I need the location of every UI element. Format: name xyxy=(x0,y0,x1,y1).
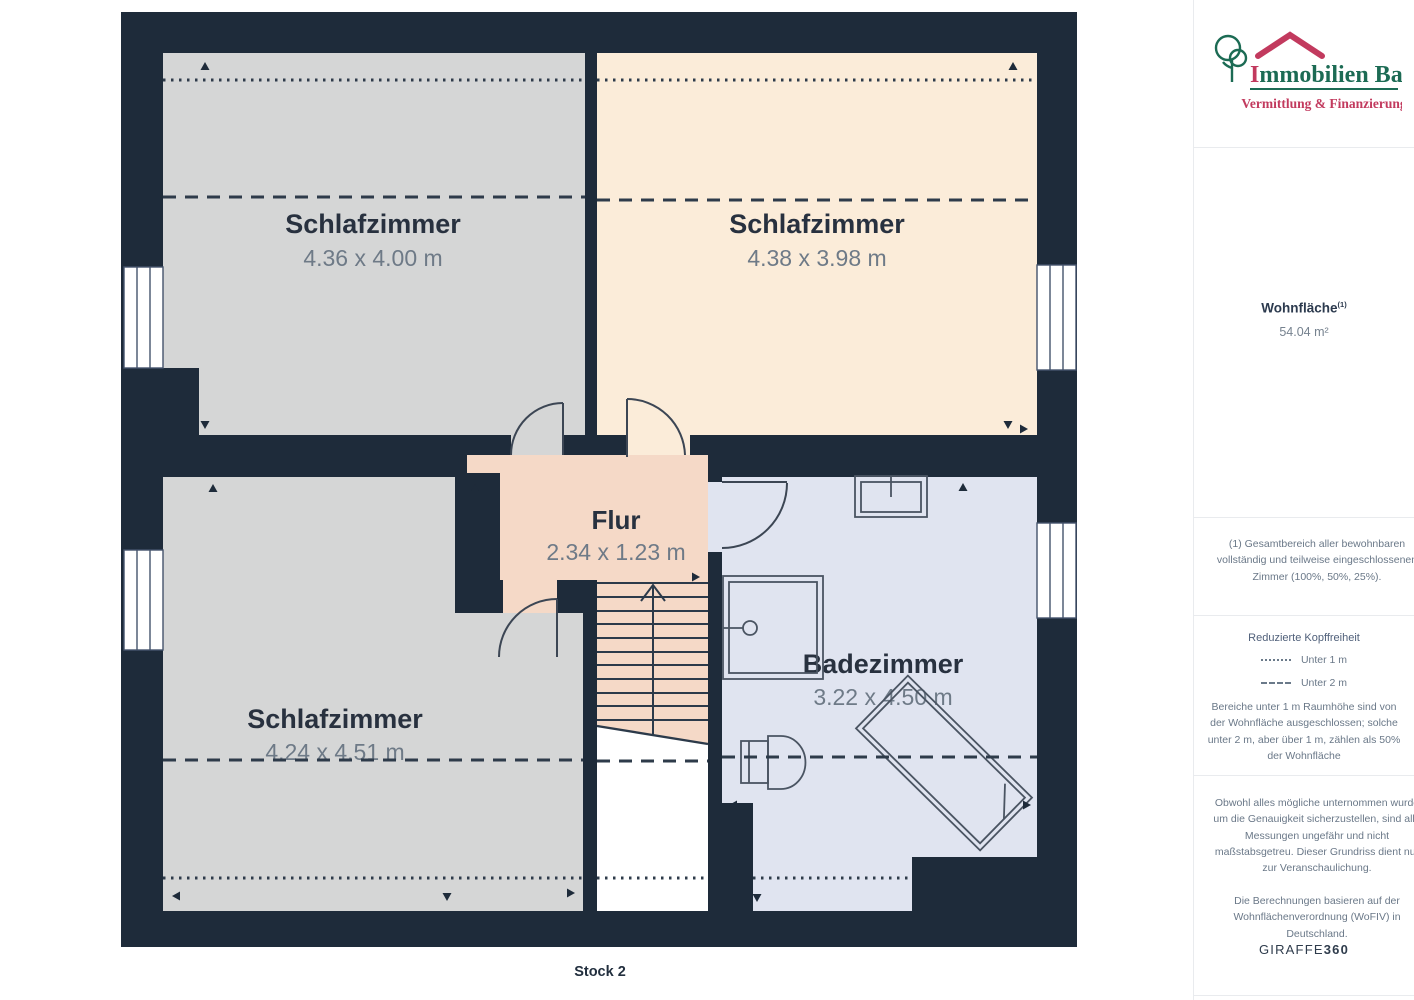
room-label-bed2: Schlafzimmer xyxy=(729,209,905,239)
floor-plan: Schlafzimmer 4.36 x 4.00 m Schlafzimmer … xyxy=(0,0,1192,1000)
disclaimer-accuracy: Obwohl alles mögliche unternommen wurde … xyxy=(1194,795,1414,876)
room-flur-strip xyxy=(467,455,708,473)
legend-note: Bereiche unter 1 m Raumhöhe sind von der… xyxy=(1194,699,1414,764)
sidebar-divider xyxy=(1194,615,1414,616)
room-dims-bed1: 4.36 x 4.00 m xyxy=(303,245,442,271)
room-label-flur: Flur xyxy=(591,505,640,535)
door-gap-1 xyxy=(511,435,563,455)
room-schlafzimmer-topleft xyxy=(163,53,585,435)
legend-item-label: Unter 1 m xyxy=(1301,654,1347,666)
floor-label: Stock 2 xyxy=(574,964,626,980)
room-schlafzimmer-topright xyxy=(597,53,1037,435)
tree-icon xyxy=(1216,36,1246,82)
room-label-bad: Badezimmer xyxy=(803,649,964,679)
stair-void xyxy=(597,726,708,911)
living-area-block: Wohnfläche(1) 54.04 m² xyxy=(1194,300,1414,339)
brand-part1: GIRAFFE xyxy=(1259,942,1324,957)
roof-icon xyxy=(1258,35,1322,56)
window-left-bottom xyxy=(124,550,163,650)
living-area-value: 54.04 m² xyxy=(1194,325,1414,339)
dotted-line-icon xyxy=(1261,659,1291,661)
logo-rest: mmobilien Bart xyxy=(1259,62,1402,88)
legend-item-under-1m: Unter 1 m xyxy=(1194,648,1414,671)
legend-item-label: Unter 2 m xyxy=(1301,677,1347,689)
giraffe360-logo: GIRAFFE360 xyxy=(1194,942,1414,957)
svg-text:Immobilien Bart: Immobilien Bart xyxy=(1250,62,1402,88)
room-dims-flur: 2.34 x 1.23 m xyxy=(546,539,685,565)
living-area-superscript: (1) xyxy=(1338,300,1347,309)
living-area-label-text: Wohnfläche xyxy=(1261,301,1337,316)
sidebar: Immobilien Bart Vermittlung & Finanzieru… xyxy=(1193,0,1414,1000)
legend-title: Reduzierte Kopffreiheit xyxy=(1194,632,1414,644)
window-left-top xyxy=(124,267,163,368)
sidebar-divider xyxy=(1194,147,1414,148)
living-area-label: Wohnfläche(1) xyxy=(1194,300,1414,316)
sidebar-divider xyxy=(1194,775,1414,776)
room-label-bed3: Schlafzimmer xyxy=(247,704,423,734)
headroom-legend: Reduzierte Kopffreiheit Unter 1 m Unter … xyxy=(1194,632,1414,764)
disclaimer-wofiv: Die Berechnungen basieren auf der Wohnfl… xyxy=(1194,893,1414,942)
door-gap-4 xyxy=(708,482,722,552)
legend-item-under-2m: Unter 2 m xyxy=(1194,671,1414,694)
page: Schlafzimmer 4.36 x 4.00 m Schlafzimmer … xyxy=(0,0,1414,1000)
company-logo: Immobilien Bart Vermittlung & Finanzieru… xyxy=(1194,22,1414,119)
wall-notch-topleft xyxy=(163,368,199,435)
brand-part2: 360 xyxy=(1324,942,1349,957)
sidebar-divider xyxy=(1194,995,1414,996)
area-footnote: (1) Gesamtbereich aller bewohnbaren voll… xyxy=(1194,536,1414,585)
sidebar-divider xyxy=(1194,517,1414,518)
logo-subtitle: Vermittlung & Finanzierung xyxy=(1241,96,1402,111)
logo-initial: I xyxy=(1250,62,1259,88)
window-right-bath xyxy=(1037,523,1076,618)
company-logo-icon: Immobilien Bart Vermittlung & Finanzieru… xyxy=(1206,22,1402,114)
window-right-top xyxy=(1037,265,1076,370)
door-gap-3 xyxy=(503,580,557,613)
door-gap-2 xyxy=(628,435,690,455)
room-dims-bed2: 4.38 x 3.98 m xyxy=(747,245,886,271)
dashed-line-icon xyxy=(1261,682,1291,684)
room-label-bed1: Schlafzimmer xyxy=(285,209,461,239)
